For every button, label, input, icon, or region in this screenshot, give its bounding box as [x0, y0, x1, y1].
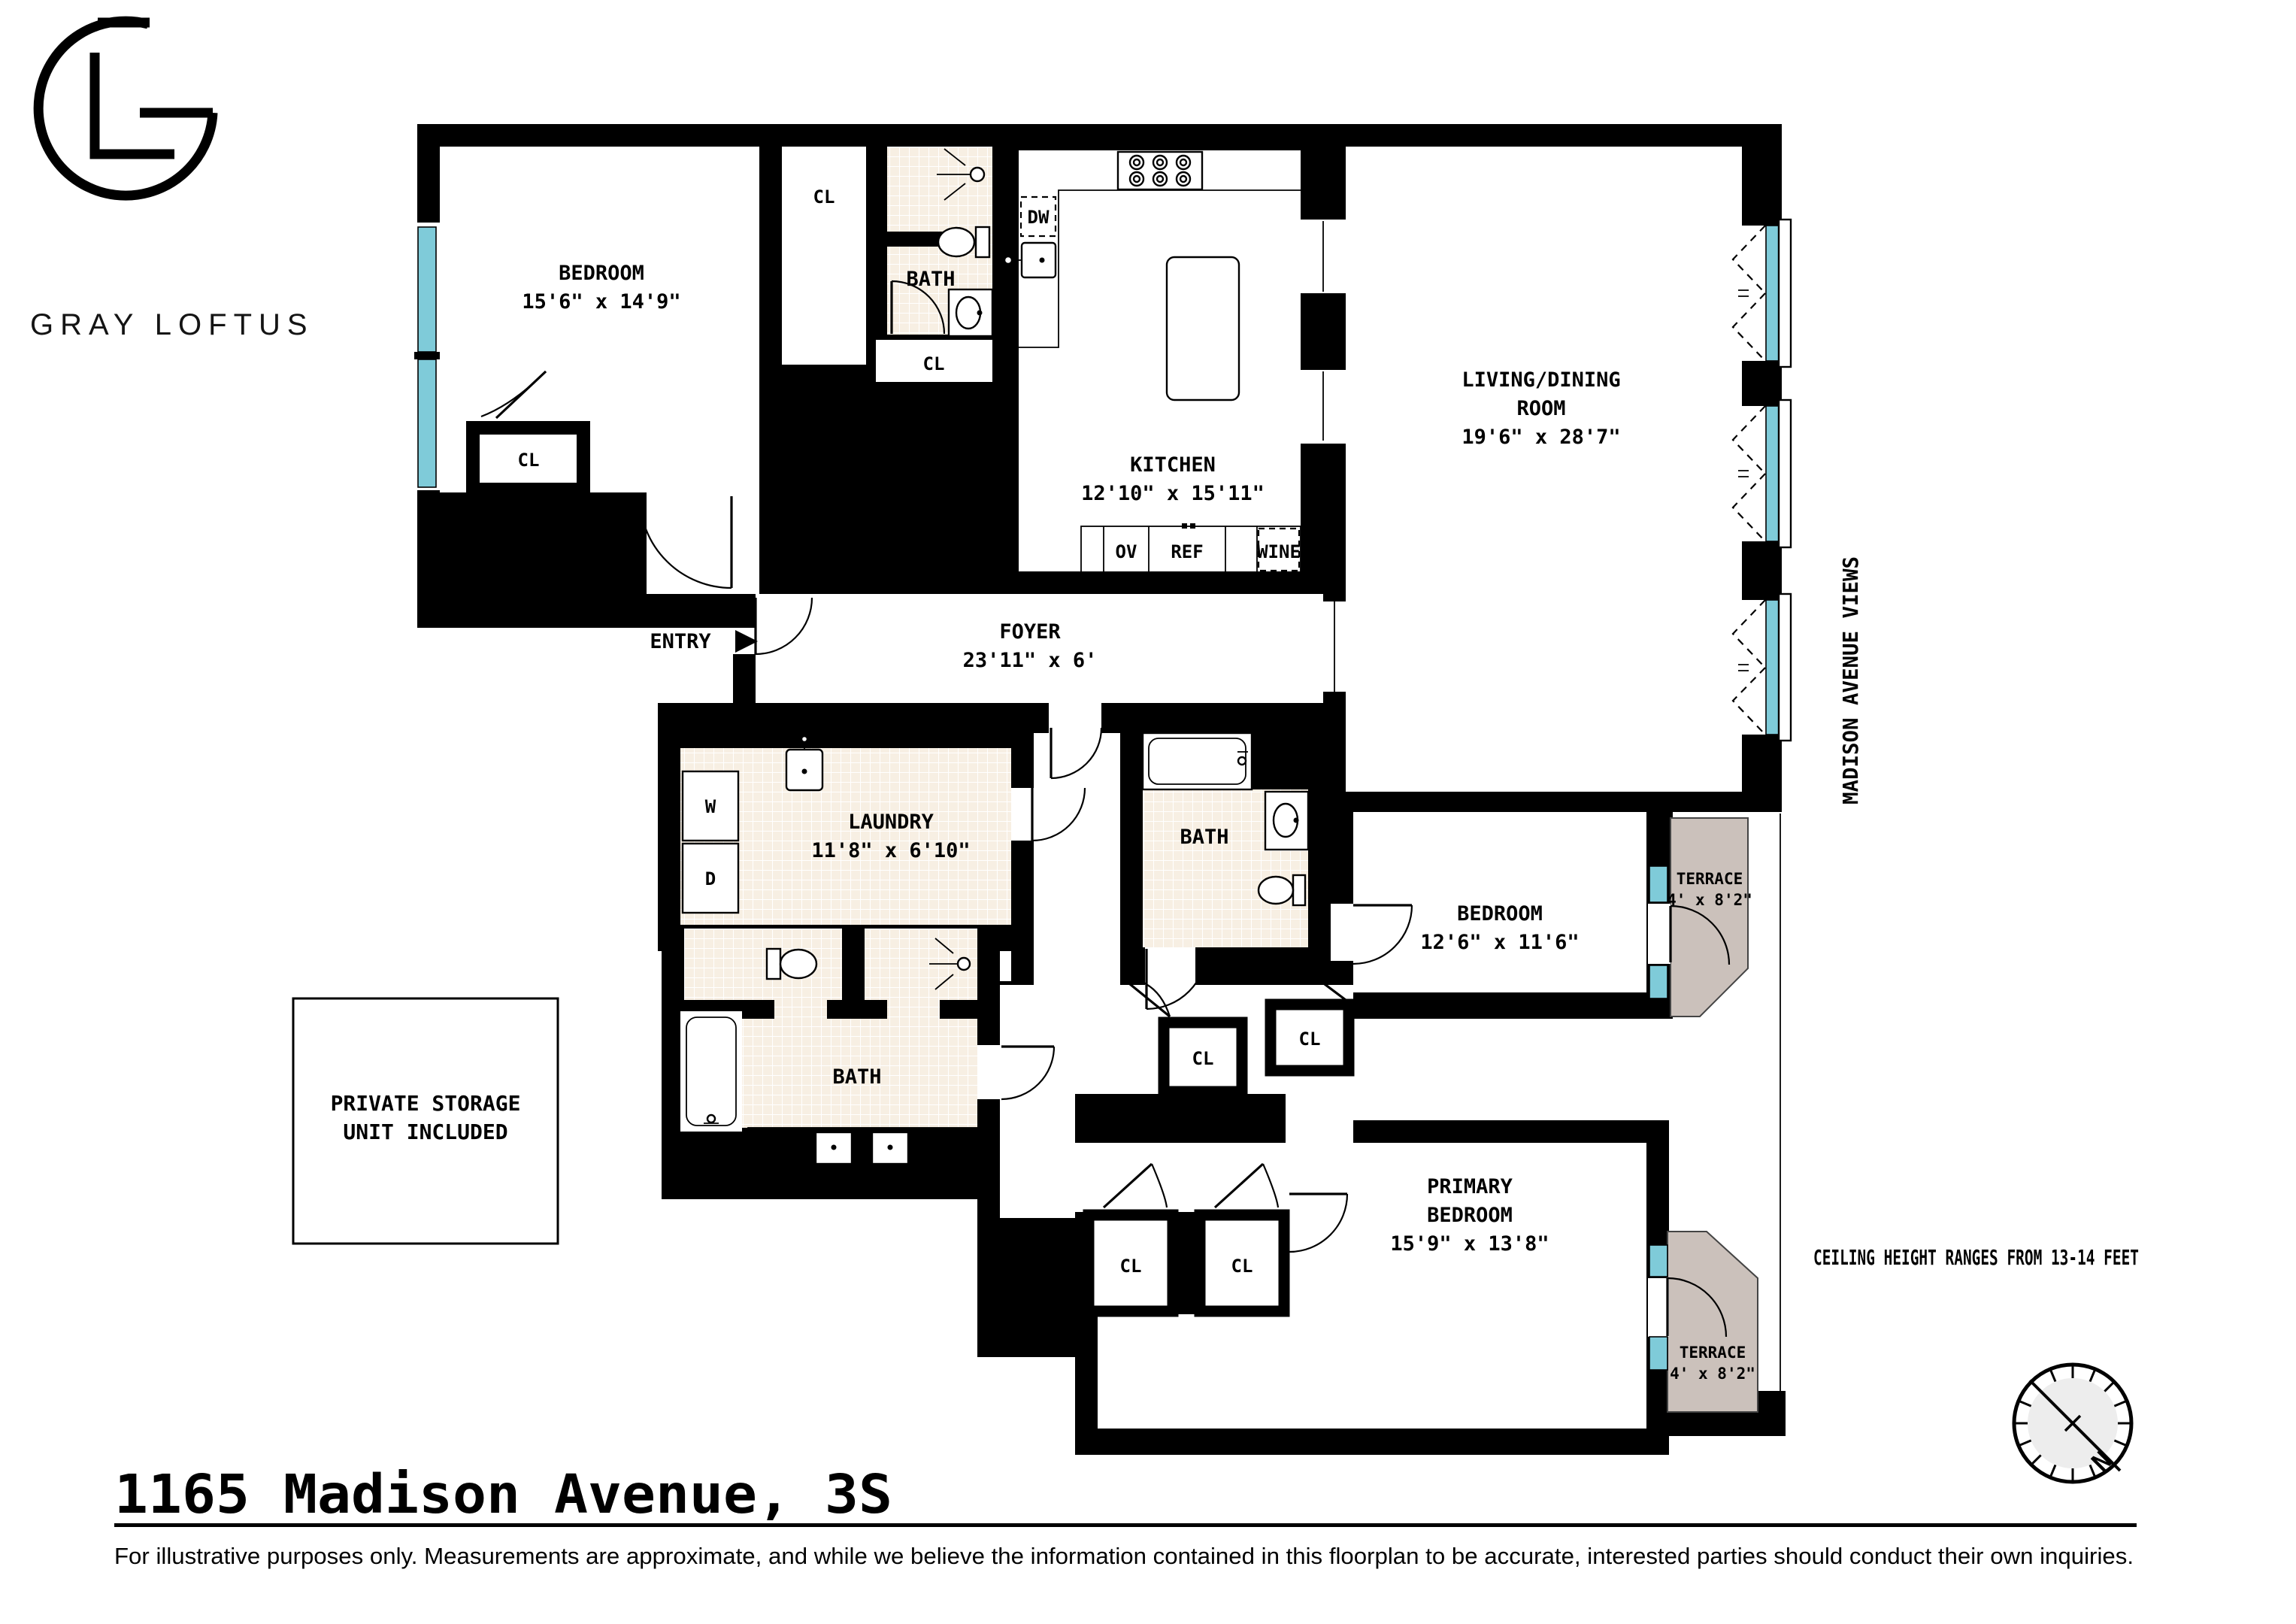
toilet-icon [1259, 875, 1305, 905]
closet-mid-label: CL [923, 353, 945, 374]
brand-logo-monogram-icon [38, 21, 213, 195]
terrace-lower-dims: 4' x 8'2" [1670, 1365, 1755, 1383]
sink-icon [1265, 792, 1308, 850]
closet-alcove [1075, 1143, 1286, 1212]
closet-top-label: CL [813, 186, 835, 208]
primary-bedroom-windows [1648, 1245, 1669, 1370]
kitchen-island [1167, 257, 1239, 400]
bedroom-mid-windows [1648, 866, 1671, 998]
room-kitchen [1019, 150, 1301, 571]
stove-icon [1118, 152, 1202, 189]
bedroom-top-label: BEDROOM [559, 262, 644, 285]
entry-label: ENTRY [650, 630, 711, 653]
bedroom-mid-label: BEDROOM [1457, 902, 1543, 926]
primary-bedroom-label-1: PRIMARY [1427, 1175, 1513, 1198]
laundry-label: LAUNDRY [848, 810, 934, 834]
hall-b-left [1000, 1094, 1075, 1218]
terrace-lower-label: TERRACE [1680, 1344, 1746, 1362]
opening-bedroom-mid [1331, 904, 1353, 961]
living-dims: 19'6" x 28'7" [1462, 426, 1620, 449]
primary-bedroom-label-2: BEDROOM [1427, 1204, 1513, 1227]
opening-bath-mid [1145, 947, 1195, 985]
terrace-upper-label: TERRACE [1677, 870, 1743, 888]
room-primary-bedroom-b [1098, 1314, 1289, 1429]
living-label-2: ROOM [1516, 397, 1565, 420]
primary-bedroom-dims: 15'9" x 13'8" [1390, 1232, 1549, 1256]
brand-name: GRAY LOFTUS [30, 308, 314, 341]
bedroom-top-windows [413, 223, 440, 490]
floorplan-canvas: GRAY LOFTUS [0, 0, 2296, 1624]
hall-bedroom-stub [647, 492, 759, 594]
bath-mid-label: BATH [1180, 826, 1228, 849]
page-title: 1165 Madison Avenue, 3S [114, 1463, 892, 1526]
storage-text-2: UNIT INCLUDED [343, 1120, 507, 1144]
living-label-1: LIVING/DINING [1462, 368, 1620, 392]
bath-primary-pass2 [887, 1000, 940, 1019]
bedroom-top-dims: 15'6" x 14'9" [522, 290, 680, 314]
footer-rule [114, 1523, 2137, 1527]
bath-top-label: BATH [906, 268, 955, 291]
closet-c-label: CL [1120, 1256, 1142, 1277]
foyer-label: FOYER [999, 620, 1061, 644]
terrace-lower [1667, 1232, 1758, 1412]
opening-bath-primary [977, 1045, 1000, 1099]
tub-icon [1143, 733, 1252, 789]
opening-laundry [1011, 788, 1034, 841]
private-storage-box: PRIVATE STORAGE UNIT INCLUDED [293, 998, 558, 1244]
dishwasher-label: DW [1028, 207, 1050, 228]
oven-label: OV [1116, 541, 1137, 562]
kitchen-label: KITCHEN [1130, 453, 1216, 477]
storage-text-1: PRIVATE STORAGE [331, 1091, 521, 1116]
wine-label: WINE [1257, 541, 1301, 562]
kitchen-dims: 12'10" x 15'11" [1081, 482, 1265, 505]
toilet-icon [767, 949, 816, 979]
bath-primary-pass1 [774, 1000, 827, 1019]
bedroom-closet-label: CL [518, 450, 540, 471]
ceiling-height-note: CEILING HEIGHT RANGES FROM 13-14 FEET [1813, 1245, 2139, 1270]
closet-b-label: CL [1299, 1029, 1321, 1050]
bath-primary-toilet-room [684, 929, 842, 1000]
terrace-upper [1671, 818, 1748, 1017]
refrigerator-label: REF [1171, 541, 1203, 562]
tub-icon [680, 1011, 742, 1132]
closet-a-label: CL [1192, 1048, 1214, 1069]
laundry-dims: 11'8" x 6'10" [811, 839, 970, 862]
washer-label: W [705, 796, 716, 817]
madison-views-label: MADISON AVENUE VIEWS [1838, 556, 1863, 804]
footer-disclaimer: For illustrative purposes only. Measurem… [114, 1543, 2134, 1569]
toilet-icon [938, 227, 989, 257]
foyer-dims: 23'11" x 6' [963, 649, 1098, 672]
terrace-upper-dims: 4' x 8'2" [1667, 891, 1752, 909]
bath-primary-label: BATH [832, 1065, 881, 1089]
bedroom-mid-dims: 12'6" x 11'6" [1420, 931, 1579, 954]
room-living [1346, 147, 1742, 792]
closet-top [782, 147, 866, 365]
compass: N [2014, 1365, 2131, 1482]
sink-icon [949, 289, 992, 336]
closet-d-label: CL [1231, 1256, 1253, 1277]
opening-foyer-hall [1049, 703, 1101, 733]
dryer-label: D [705, 868, 716, 889]
